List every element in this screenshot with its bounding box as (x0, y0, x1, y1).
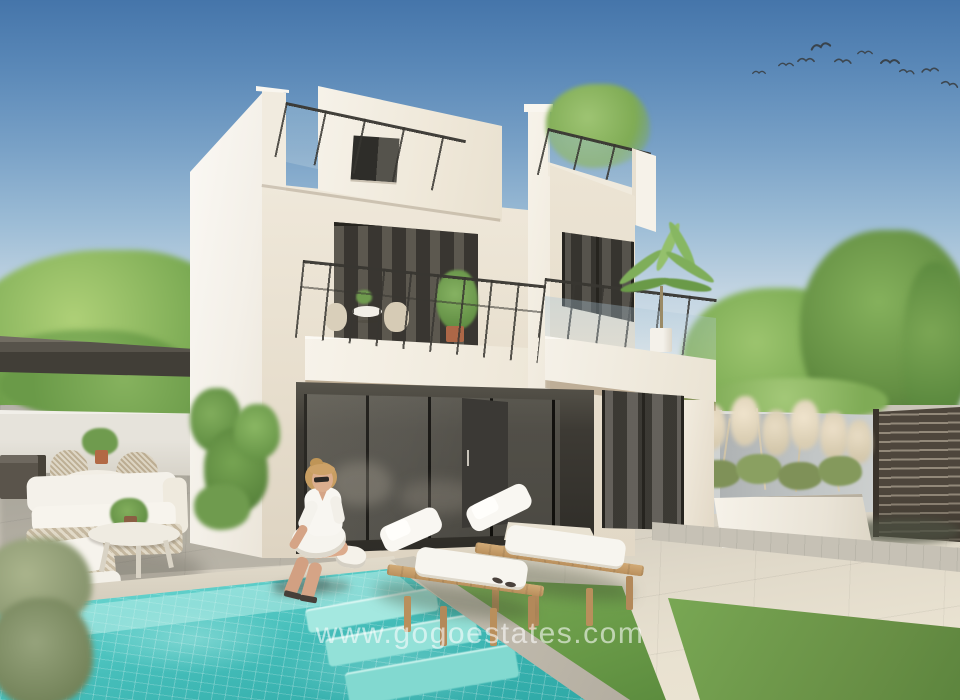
palm-pot (650, 328, 672, 352)
bird-icon (880, 56, 900, 66)
lounger-leg (626, 576, 633, 610)
woman-at-pool-edge (272, 462, 368, 608)
bird-icon (940, 77, 960, 90)
bird-icon (752, 68, 766, 76)
right-corner-pillar (684, 400, 714, 538)
grass-tuft (778, 462, 822, 490)
bird-icon (921, 64, 940, 75)
door-handle (467, 450, 469, 466)
grass-tuft (818, 456, 862, 486)
bird-icon (857, 48, 873, 56)
palm-plant (612, 228, 716, 356)
terracotta-pot (95, 450, 108, 464)
vine-foliage (194, 484, 250, 530)
pampas-plume (730, 396, 760, 446)
woman-sandal (300, 595, 318, 604)
grass-tuft (736, 454, 782, 484)
palm-trunk (660, 286, 663, 332)
pampas-plume (790, 400, 820, 450)
bird-icon (809, 38, 832, 53)
birds-flock (745, 35, 960, 95)
sunglasses (314, 476, 329, 482)
vine-foliage (234, 404, 280, 460)
roof-parapet-end-pillar (632, 148, 656, 232)
bird-icon (834, 55, 853, 66)
watermark-text: www.gogoestates.com (0, 617, 960, 651)
villa-render-photo: www.gogoestates.com (0, 0, 960, 700)
pampas-plume (762, 410, 790, 456)
bird-icon (898, 66, 915, 76)
pampas-grass (690, 396, 880, 508)
bird-icon (778, 60, 794, 68)
pampas-plume (820, 412, 848, 460)
woman-hair-fringe (309, 464, 335, 475)
bird-icon (797, 55, 815, 64)
